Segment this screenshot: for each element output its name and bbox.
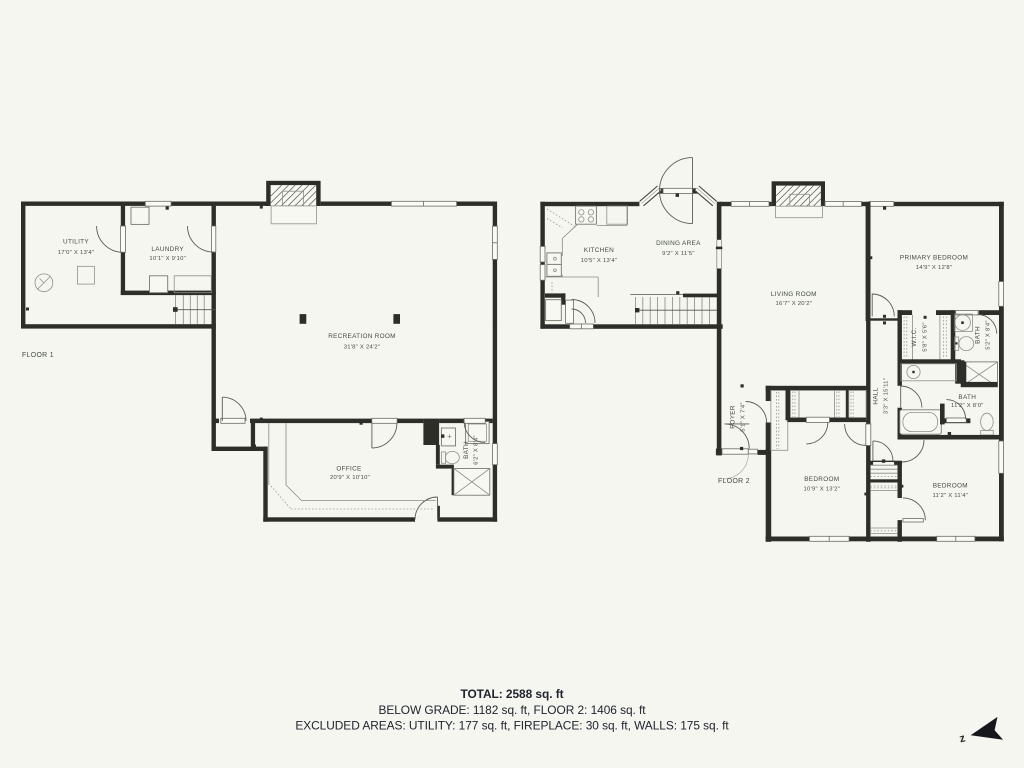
svg-text:11'2" X 8'0": 11'2" X 8'0" — [951, 403, 984, 409]
svg-text:W.I.C.: W.I.C. — [911, 327, 918, 346]
svg-text:LAUNDRY: LAUNDRY — [151, 246, 184, 253]
svg-text:9'2" X 11'5": 9'2" X 11'5" — [662, 251, 695, 257]
svg-text:5'1" X 7'4": 5'1" X 7'4" — [741, 402, 747, 432]
svg-text:10'1" X 9'10": 10'1" X 9'10" — [149, 256, 186, 262]
svg-text:14'9" X 12'8": 14'9" X 12'8" — [916, 265, 953, 271]
svg-text:BATH: BATH — [958, 394, 976, 401]
svg-text:5'8" X 5'6": 5'8" X 5'6" — [923, 322, 929, 352]
svg-text:FLOOR 2: FLOOR 2 — [718, 478, 750, 485]
svg-text:11'2" X 11'4": 11'2" X 11'4" — [932, 493, 968, 499]
svg-text:UTILITY: UTILITY — [63, 239, 89, 246]
svg-text:6'2" X 8'4": 6'2" X 8'4" — [474, 435, 480, 465]
svg-text:TOTAL: 2588 sq. ft: TOTAL: 2588 sq. ft — [460, 687, 563, 701]
svg-text:16'7" X 20'2": 16'7" X 20'2" — [776, 301, 813, 307]
svg-text:BATH: BATH — [975, 326, 982, 344]
svg-text:17'0" X 13'4": 17'0" X 13'4" — [58, 250, 95, 256]
svg-text:BATH: BATH — [463, 441, 470, 459]
svg-text:5'2" X 8'4": 5'2" X 8'4" — [986, 320, 992, 350]
svg-text:BEDROOM: BEDROOM — [804, 476, 839, 483]
svg-text:20'9" X 10'10": 20'9" X 10'10" — [330, 475, 370, 481]
svg-text:31'8" X 24'2": 31'8" X 24'2" — [344, 344, 381, 350]
svg-text:KITCHEN: KITCHEN — [584, 247, 614, 254]
svg-text:LIVING ROOM: LIVING ROOM — [771, 291, 817, 298]
svg-text:RECREATION ROOM: RECREATION ROOM — [328, 333, 396, 340]
svg-text:PRIMARY BEDROOM: PRIMARY BEDROOM — [900, 255, 968, 262]
svg-text:OFFICE: OFFICE — [336, 466, 361, 473]
svg-text:10'5" X 13'4": 10'5" X 13'4" — [581, 258, 618, 264]
svg-text:10'9" X 13'2": 10'9" X 13'2" — [804, 487, 841, 493]
svg-text:FOYER: FOYER — [730, 405, 737, 429]
svg-text:BELOW GRADE: 1182 sq. ft, FLOO: BELOW GRADE: 1182 sq. ft, FLOOR 2: 1406 … — [378, 703, 646, 717]
svg-text:3'3" X 15'11": 3'3" X 15'11" — [884, 378, 890, 414]
svg-text:HALL: HALL — [873, 387, 880, 404]
svg-text:DINING AREA: DINING AREA — [656, 240, 701, 247]
svg-text:FLOOR 1: FLOOR 1 — [22, 352, 54, 359]
svg-text:z: z — [958, 732, 967, 745]
svg-text:EXCLUDED AREAS: UTILITY: 177 s: EXCLUDED AREAS: UTILITY: 177 sq. ft, FIR… — [295, 719, 729, 733]
svg-text:BEDROOM: BEDROOM — [933, 483, 968, 490]
